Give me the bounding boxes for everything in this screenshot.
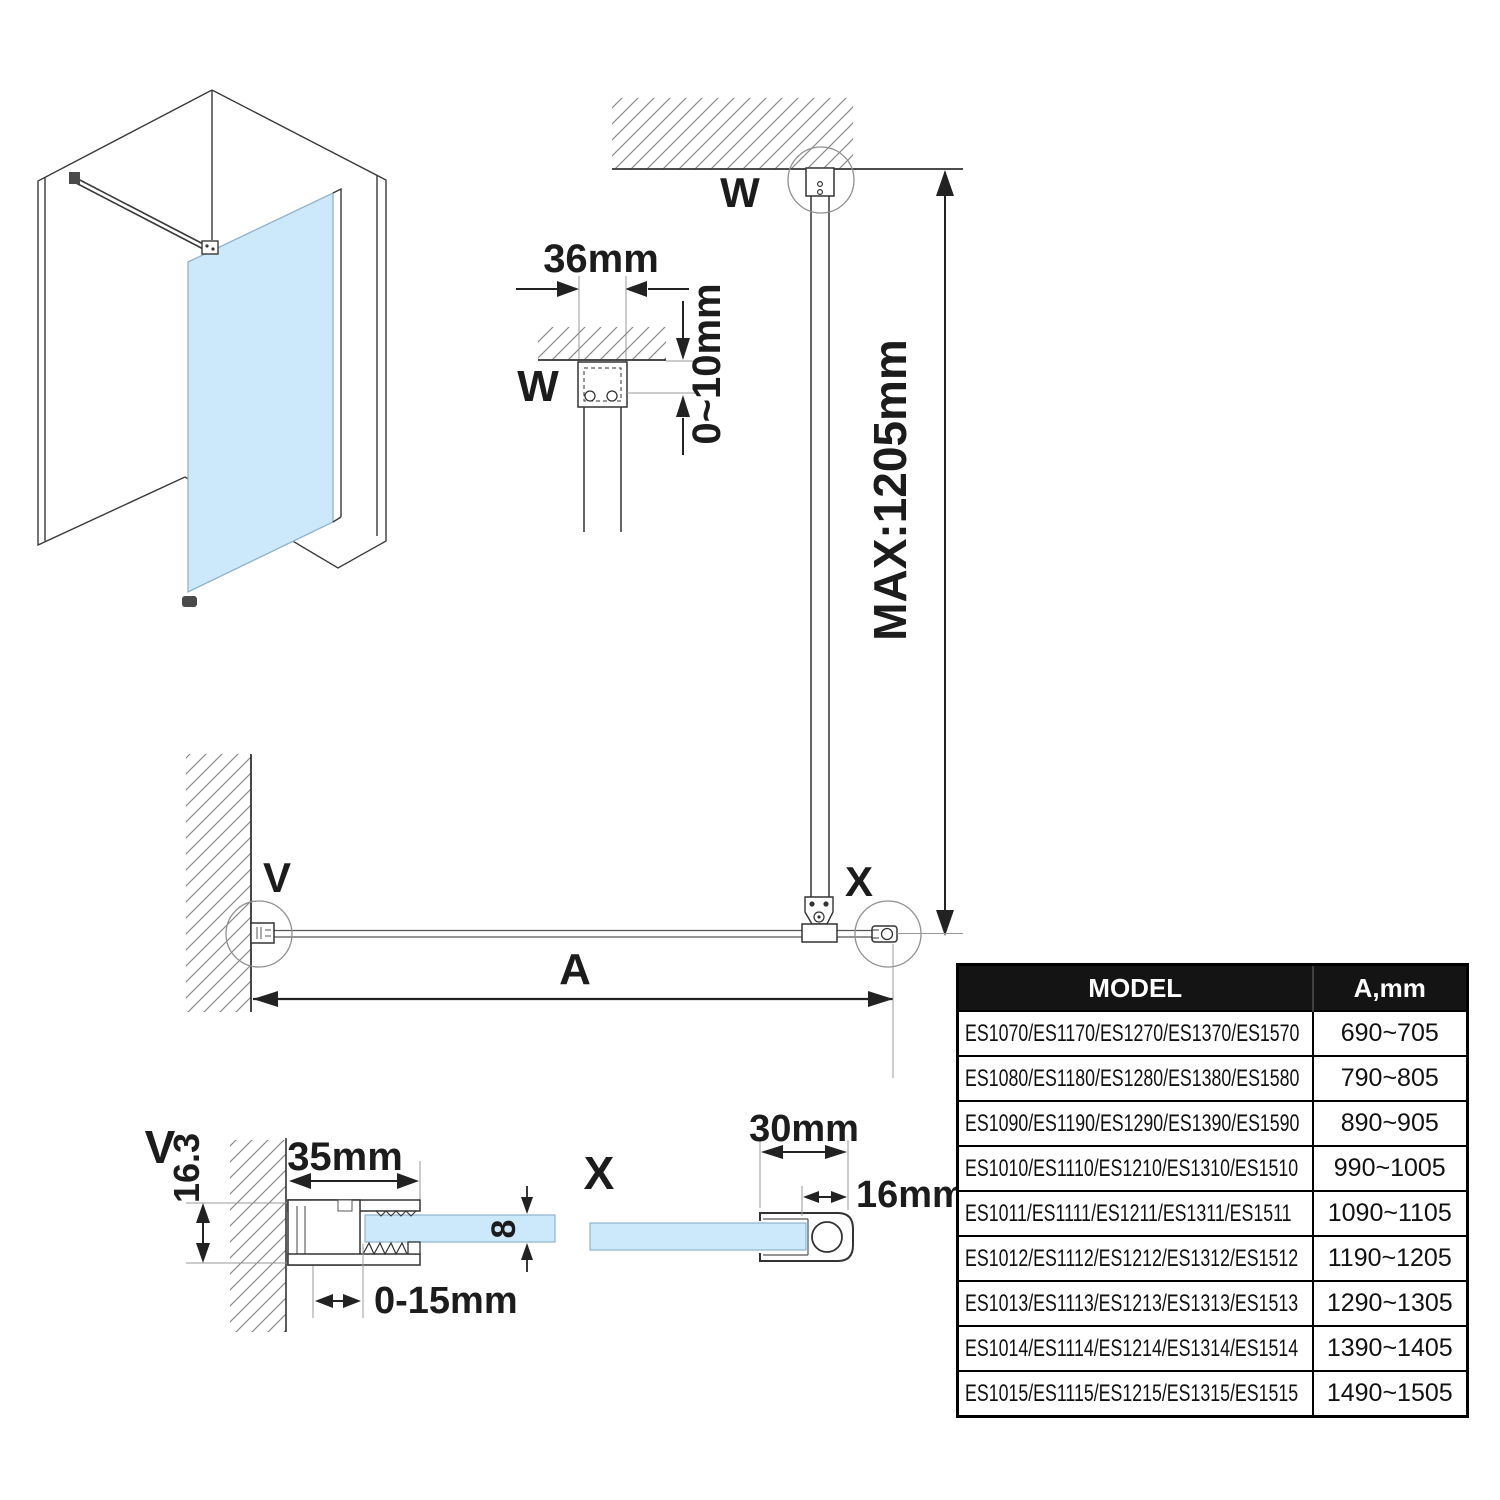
model-text: ES1010/ES1110/ES1210/ES1310/ES1510: [965, 1155, 1298, 1183]
a-mm-cell: 790~805: [1313, 1056, 1468, 1101]
x-width-label: 30mm: [749, 1108, 859, 1150]
detail-w-dim-width: 36mm: [543, 237, 659, 281]
max-dim-arrow-up: [936, 170, 954, 196]
profile-end-hook: [408, 1242, 420, 1254]
header-a-mm: A,mm: [1313, 965, 1468, 1012]
end-cap-tube-section: [812, 1222, 842, 1252]
detail-x-glass: [590, 1223, 806, 1250]
wall-hatch: [186, 754, 251, 1012]
a-dim-label: A: [559, 945, 591, 994]
detail-w-label: W: [517, 362, 559, 411]
model-text: ES1015/ES1115/ES1215/ES1315/ES1515: [965, 1380, 1298, 1408]
detail-v-wall-hatch: [230, 1140, 286, 1332]
model-text: ES1090/ES1190/ES1290/ES1390/ES1590: [965, 1110, 1299, 1138]
a-mm-cell: 690~705: [1313, 1011, 1468, 1056]
a-dim-arrow-right: [868, 991, 893, 1007]
detail-w-ceiling-hatch: [538, 327, 666, 360]
table-row: ES1090/ES1190/ES1290/ES1390/ES1590890~90…: [958, 1101, 1468, 1146]
ceiling-hatch: [612, 98, 853, 169]
glass-thick-label: 8: [485, 1220, 523, 1239]
shower-screen-installation-drawing: V W X MAX:1205mm A 36mm 0~10mm W V 16.3: [0, 0, 1500, 1500]
model-text: ES1013/ES1113/ES1213/ES1313/ES1513: [965, 1290, 1298, 1318]
model-cell: ES1080/ES1180/ES1280/ES1380/ES1580: [958, 1056, 1313, 1101]
model-cell: ES1013/ES1113/ES1213/ES1313/ES1513: [958, 1281, 1313, 1326]
w-dim-arrow-right: [557, 281, 579, 297]
detail-w-bar: [584, 407, 621, 532]
bracket-swivel-pin: [817, 915, 820, 918]
profile-bottom-bar: [288, 1254, 420, 1265]
a-mm-cell: 1090~1105: [1313, 1191, 1468, 1236]
iso-wall-mount-profile: [333, 189, 341, 522]
x-tube-arrow-left: [803, 1191, 819, 1203]
iso-support-bar: [76, 178, 209, 252]
model-text: ES1070/ES1170/ES1270/ES1370/ES1570: [965, 1020, 1299, 1048]
plan-label-v: V: [263, 854, 291, 901]
a-mm-cell: 990~1005: [1313, 1146, 1468, 1191]
wall-profile-plan: [251, 923, 274, 943]
bracket-screw: [818, 190, 823, 195]
v-depth-label: 16.3: [166, 1133, 207, 1203]
detail-w-bracket: [578, 362, 627, 407]
end-cap-tube: [882, 929, 893, 940]
model-cell: ES1015/ES1115/ES1215/ES1315/ES1515: [958, 1371, 1313, 1417]
v-adjust-arrow-left: [315, 1294, 333, 1308]
x-tube-arrow-right: [831, 1191, 847, 1203]
table-row: ES1010/ES1110/ES1210/ES1310/ES1510990~10…: [958, 1146, 1468, 1191]
a-mm-cell: 1490~1505: [1313, 1371, 1468, 1417]
iso-bracket-screw: [205, 244, 208, 247]
gap-dim-label: 0~10mm: [685, 283, 729, 444]
header-model: MODEL: [958, 965, 1313, 1012]
v-depth-arrow-down: [196, 1243, 210, 1263]
profile-spring: [363, 1243, 407, 1254]
glass-thick-arrow-down: [521, 1197, 533, 1214]
table-row: ES1011/ES1111/ES1211/ES1311/ES15111090~1…: [958, 1191, 1468, 1236]
plan-label-w: W: [720, 169, 760, 216]
model-cell: ES1070/ES1170/ES1270/ES1370/ES1570: [958, 1011, 1313, 1056]
bracket-screw: [818, 182, 823, 187]
iso-bar-glass-bracket: [202, 241, 218, 254]
model-cell: ES1010/ES1110/ES1210/ES1310/ES1510: [958, 1146, 1313, 1191]
max-dim-label: MAX:1205mm: [864, 339, 916, 641]
table-row: ES1070/ES1170/ES1270/ES1370/ES1570690~70…: [958, 1011, 1468, 1056]
wall-profile-body: [251, 923, 274, 943]
v-depth-arrow-up: [196, 1203, 210, 1223]
detail-x: X 30mm 16mm: [584, 1108, 966, 1261]
v-width-label: 35mm: [287, 1135, 403, 1179]
model-text: ES1014/ES1114/ES1214/ES1314/ES1514: [965, 1335, 1298, 1363]
glass-clamp: [802, 924, 837, 942]
glass-plan-lines: [274, 931, 873, 938]
iso-floor-foot: [182, 596, 197, 607]
bracket-screw: [823, 901, 828, 906]
iso-bar-wall-clamp: [69, 172, 80, 184]
x-tube-label: 16mm: [856, 1174, 966, 1216]
bar-glass-bracket: [802, 897, 837, 942]
a-dim-arrow-left: [253, 991, 278, 1007]
v-adjust-arrow-right: [343, 1294, 361, 1308]
detail-x-label: X: [584, 1147, 615, 1199]
model-text: ES1080/ES1180/ES1280/ES1380/ES1580: [965, 1065, 1299, 1093]
glass-thick-arrow-up: [521, 1243, 533, 1260]
model-table: MODEL A,mm ES1070/ES1170/ES1270/ES1370/E…: [956, 963, 1469, 1418]
detail-v-glass: [365, 1215, 555, 1242]
detail-w: 36mm 0~10mm W: [516, 237, 729, 532]
table-row: ES1012/ES1112/ES1212/ES1312/ES15121190~1…: [958, 1236, 1468, 1281]
max-dim-arrow-down: [936, 910, 954, 936]
model-cell: ES1012/ES1112/ES1212/ES1312/ES1512: [958, 1236, 1313, 1281]
table-row: ES1015/ES1115/ES1215/ES1315/ES15151490~1…: [958, 1371, 1468, 1417]
model-size-table: MODEL A,mm ES1070/ES1170/ES1270/ES1370/E…: [956, 963, 1466, 1418]
profile-notch-top: [338, 1200, 352, 1211]
bracket-screw: [809, 901, 814, 906]
table-row: ES1013/ES1113/ES1213/ES1313/ES15131290~1…: [958, 1281, 1468, 1326]
isometric-view: [38, 90, 386, 607]
table-row: ES1080/ES1180/ES1280/ES1380/ES1580790~80…: [958, 1056, 1468, 1101]
v-width-arrow-right: [397, 1173, 419, 1189]
detail-w-screw: [607, 391, 617, 401]
model-cell: ES1011/ES1111/ES1211/ES1311/ES1511: [958, 1191, 1313, 1236]
model-text: ES1012/ES1112/ES1212/ES1312/ES1512: [965, 1245, 1298, 1273]
support-bar: [811, 196, 829, 897]
plan-label-x: X: [845, 858, 873, 905]
table-header-row: MODEL A,mm: [958, 965, 1468, 1012]
a-mm-cell: 1290~1305: [1313, 1281, 1468, 1326]
table-row: ES1014/ES1114/ES1214/ES1314/ES15141390~1…: [958, 1326, 1468, 1371]
detail-v: V 16.3 35mm 8: [145, 1121, 555, 1332]
w-dim-arrow-left: [625, 281, 647, 297]
a-mm-cell: 1390~1405: [1313, 1326, 1468, 1371]
glass-end-cap: [872, 926, 897, 942]
model-cell: ES1014/ES1114/ES1214/ES1314/ES1514: [958, 1326, 1313, 1371]
a-mm-cell: 1190~1205: [1313, 1236, 1468, 1281]
iso-bracket-screw: [211, 247, 214, 250]
v-adjust-label: 0-15mm: [374, 1280, 518, 1322]
detail-w-screw: [585, 391, 595, 401]
model-text: ES1011/ES1111/ES1211/ES1311/ES1511: [965, 1200, 1292, 1228]
a-mm-cell: 890~905: [1313, 1101, 1468, 1146]
model-cell: ES1090/ES1190/ES1290/ES1390/ES1590: [958, 1101, 1313, 1146]
